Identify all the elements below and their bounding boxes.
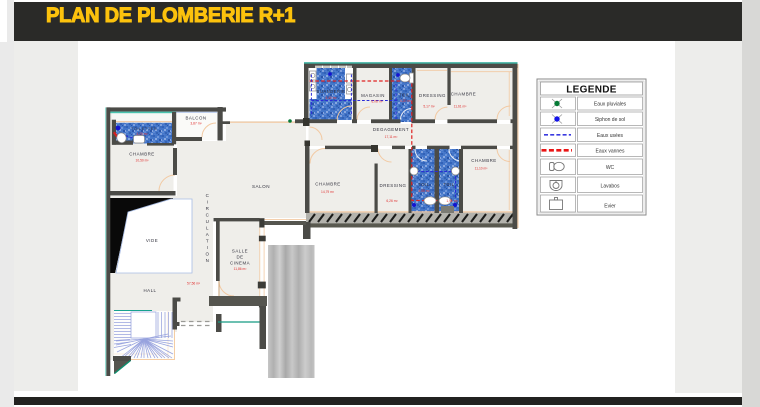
svg-text:4,55 m²: 4,55 m² xyxy=(418,189,430,193)
svg-text:10,50 m²: 10,50 m² xyxy=(135,159,149,163)
svg-text:14,79 m²: 14,79 m² xyxy=(321,190,335,194)
svg-text:SALON: SALON xyxy=(252,184,270,189)
svg-text:LEGENDE: LEGENDE xyxy=(566,85,616,96)
svg-text:TOIL: TOIL xyxy=(399,93,410,98)
svg-text:HALL: HALL xyxy=(144,288,157,293)
svg-text:Siphon de sol: Siphon de sol xyxy=(595,117,625,123)
svg-text:A: A xyxy=(206,232,209,237)
svg-text:3,87 m²: 3,87 m² xyxy=(190,122,202,126)
svg-text:DEGAGEMENT: DEGAGEMENT xyxy=(373,127,409,132)
svg-text:17,11 m²: 17,11 m² xyxy=(385,135,399,139)
svg-text:Lavabos: Lavabos xyxy=(601,184,620,190)
svg-text:Eaux pluviales: Eaux pluviales xyxy=(594,102,627,108)
svg-text:I: I xyxy=(207,200,208,205)
svg-text:11,61 m²: 11,61 m² xyxy=(454,105,468,109)
svg-text:O: O xyxy=(206,252,210,257)
svg-text:TOIL: TOIL xyxy=(418,182,429,187)
svg-text:CHAMBRE: CHAMBRE xyxy=(129,152,154,157)
svg-text:4,40 m²: 4,40 m² xyxy=(325,96,337,100)
svg-text:6,08 m²: 6,08 m² xyxy=(371,100,383,104)
svg-text:DE: DE xyxy=(236,255,243,260)
svg-text:6,26 m²: 6,26 m² xyxy=(386,199,398,203)
svg-text:T: T xyxy=(206,239,209,244)
svg-text:CHAMBRE: CHAMBRE xyxy=(471,158,496,163)
svg-text:57,56 m²: 57,56 m² xyxy=(187,282,201,286)
svg-text:SALLE: SALLE xyxy=(232,249,248,254)
svg-text:TOILETTES: TOILETTES xyxy=(131,126,157,131)
svg-text:VIDE: VIDE xyxy=(146,238,158,243)
svg-text:CHAMBRE: CHAMBRE xyxy=(451,92,476,97)
svg-text:4,20 m²: 4,20 m² xyxy=(136,132,148,136)
svg-text:11,86 m²: 11,86 m² xyxy=(234,267,248,271)
svg-text:CINEMA: CINEMA xyxy=(230,261,250,266)
svg-text:Evier: Evier xyxy=(604,204,616,210)
svg-text:1,91 m²: 1,91 m² xyxy=(446,199,458,203)
svg-text:4,20 m²: 4,20 m² xyxy=(400,99,412,103)
svg-text:5,17 m²: 5,17 m² xyxy=(423,105,435,109)
svg-text:BUANDERIE: BUANDERIE xyxy=(317,89,346,94)
svg-text:MAGASIN: MAGASIN xyxy=(361,93,385,98)
svg-text:N: N xyxy=(206,258,209,263)
svg-text:11,10 m²: 11,10 m² xyxy=(475,167,489,171)
svg-text:WC: WC xyxy=(606,165,615,171)
svg-text:CHAMBRE: CHAMBRE xyxy=(315,181,340,186)
svg-text:BALCON: BALCON xyxy=(185,116,206,121)
svg-text:I: I xyxy=(207,245,208,250)
svg-text:TOIL: TOIL xyxy=(443,182,454,187)
svg-text:U: U xyxy=(206,219,209,224)
svg-text:Eaux vannes: Eaux vannes xyxy=(596,149,625,155)
svg-text:DRESSING: DRESSING xyxy=(419,93,446,98)
svg-text:Eaux usées: Eaux usées xyxy=(597,133,624,139)
svg-text:DRESSING: DRESSING xyxy=(380,183,407,188)
